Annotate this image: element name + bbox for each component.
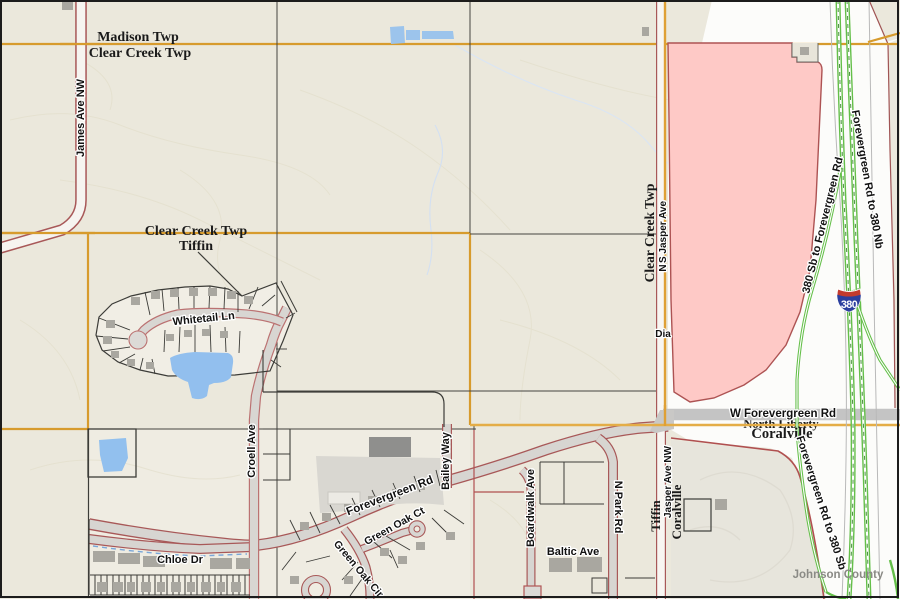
svg-text:N Park Rd: N Park Rd	[612, 481, 624, 534]
svg-text:Madison Twp: Madison Twp	[97, 30, 179, 45]
svg-text:Dia: Dia	[655, 329, 671, 340]
svg-text:Clear Creek Twp: Clear Creek Twp	[145, 224, 248, 239]
svg-text:James Ave NW: James Ave NW	[75, 78, 87, 157]
svg-text:Tiffin: Tiffin	[648, 499, 663, 531]
svg-text:Boardwalk Ave: Boardwalk Ave	[525, 469, 537, 547]
svg-text:Croell Ave: Croell Ave	[246, 424, 258, 478]
svg-text:Chloe Dr: Chloe Dr	[157, 554, 204, 566]
svg-text:Johnson County: Johnson County	[793, 569, 884, 581]
svg-text:380: 380	[841, 299, 858, 311]
svg-text:Coralville: Coralville	[669, 484, 684, 539]
svg-text:Clear Creek Twp: Clear Creek Twp	[89, 46, 192, 61]
svg-text:W Forevergreen Rd: W Forevergreen Rd	[730, 408, 836, 420]
svg-text:Clear Creek Twp: Clear Creek Twp	[642, 184, 657, 283]
svg-text:Baltic Ave: Baltic Ave	[547, 546, 599, 558]
svg-text:Tiffin: Tiffin	[179, 239, 213, 254]
svg-text:Bailey Way: Bailey Way	[440, 431, 452, 490]
svg-text:S Jasper Ave: S Jasper Ave	[658, 201, 669, 264]
svg-text:N: N	[658, 264, 669, 271]
